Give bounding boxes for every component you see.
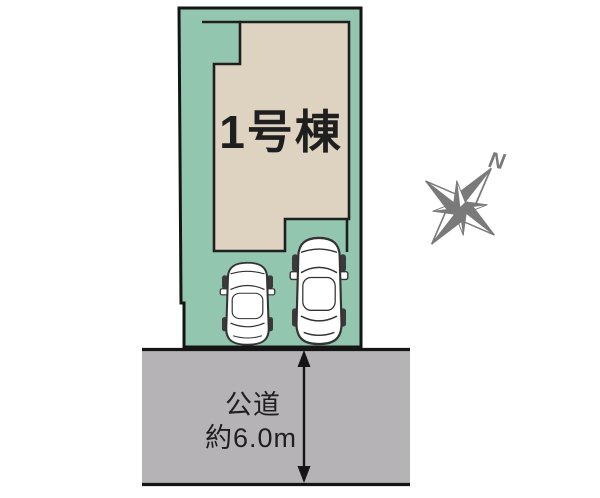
road-width-label: 約6.0m bbox=[205, 423, 297, 453]
building-label: 1号棟 bbox=[219, 106, 343, 158]
car-icon bbox=[220, 263, 274, 345]
compass-north-label: N bbox=[487, 147, 508, 175]
compass-rose-icon bbox=[397, 141, 525, 271]
road-name-label: 公道 bbox=[225, 390, 281, 420]
site-plan-drawing: 1号棟 公道 約6.0m N bbox=[0, 0, 600, 498]
car-icon bbox=[290, 238, 348, 344]
site-plan-canvas: 1号棟 公道 約6.0m N bbox=[0, 0, 600, 498]
